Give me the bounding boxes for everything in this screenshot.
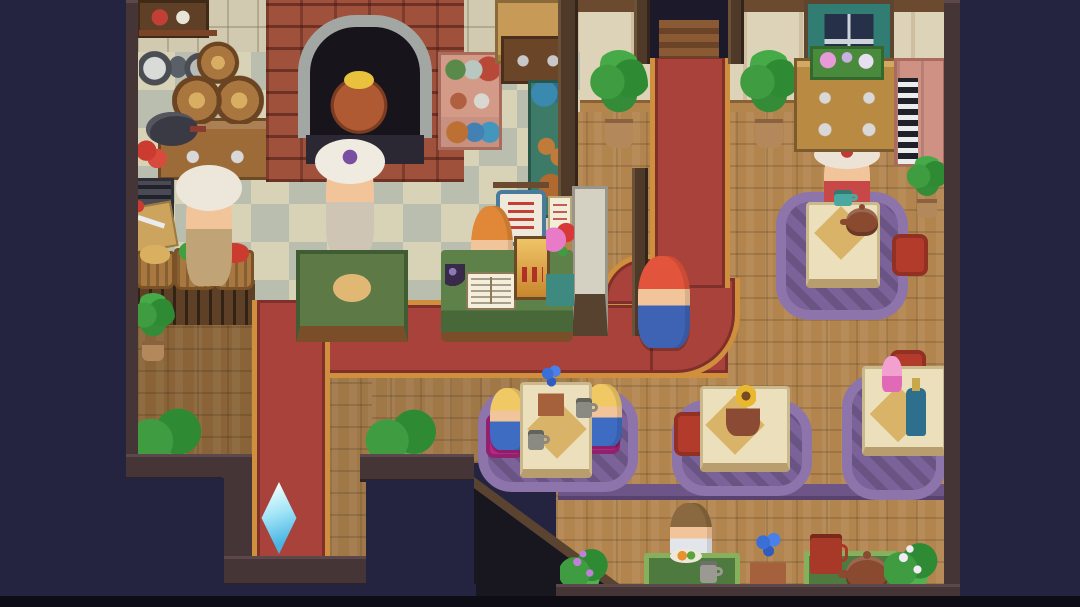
ink-pot	[445, 264, 465, 288]
cushion-northeast	[892, 234, 928, 276]
wine-barrels	[172, 40, 264, 124]
palm-plant-door-left	[590, 50, 648, 148]
outside-southmid	[366, 480, 474, 607]
tomato-pair	[136, 140, 168, 168]
north-doorway[interactable]	[648, 0, 730, 58]
teacup-lady	[834, 190, 852, 206]
blue-flower-pot	[750, 530, 786, 586]
red-mug	[810, 534, 842, 574]
npc-head-chef[interactable]	[186, 172, 232, 286]
teapot-northeast	[846, 208, 878, 236]
food-plate	[670, 549, 702, 563]
prep-table	[296, 250, 408, 342]
piano-key-panel	[898, 78, 918, 164]
stone-pillar	[572, 186, 608, 336]
cup-diner	[700, 561, 717, 583]
carpet-vertical	[650, 56, 730, 288]
guest-book[interactable]	[466, 272, 516, 310]
sunflower-vase	[726, 390, 760, 436]
mug-twin-right	[576, 398, 592, 418]
kitchen-door-post	[558, 0, 578, 210]
corner-plant-east	[906, 156, 948, 218]
player-knight[interactable]	[638, 256, 690, 348]
cash-register[interactable]	[514, 236, 550, 300]
outside-southwest	[0, 478, 224, 607]
window-planter	[810, 46, 884, 80]
flower-vase-twins	[538, 362, 564, 416]
screen-bottom-letterbox	[0, 596, 1080, 607]
basket-potatoes	[135, 251, 175, 289]
southmid-wall	[360, 454, 474, 482]
palm-plant-door-right	[740, 50, 798, 148]
south-exit-wall	[222, 556, 372, 586]
counter-flower-vase	[546, 222, 574, 306]
parfait-drink	[882, 356, 902, 392]
flower-bush-white	[884, 536, 938, 590]
npc-baker[interactable]	[326, 146, 374, 258]
copper-stew-pot	[322, 66, 396, 134]
wine-bottle	[906, 388, 926, 436]
pink-jar-shelf	[438, 52, 502, 150]
outside-east	[960, 0, 1080, 607]
game-viewport[interactable]	[0, 0, 1080, 607]
mug-twin-left	[528, 430, 544, 450]
west-wall	[124, 0, 138, 478]
